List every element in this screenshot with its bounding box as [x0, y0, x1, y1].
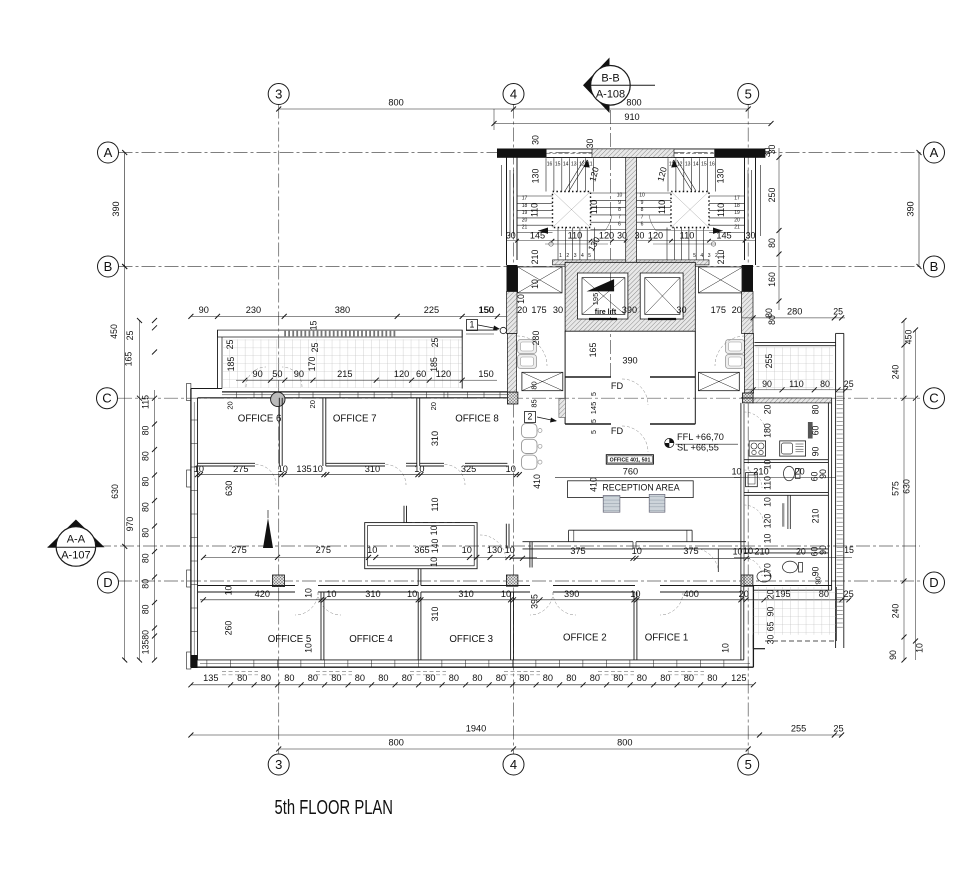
svg-text:5: 5: [591, 430, 598, 434]
svg-text:195: 195: [591, 293, 600, 306]
svg-text:30: 30: [617, 231, 627, 241]
svg-text:20: 20: [308, 400, 317, 408]
svg-text:20: 20: [763, 405, 773, 415]
svg-text:25: 25: [430, 338, 440, 348]
svg-text:10: 10: [429, 557, 439, 567]
svg-text:85: 85: [529, 399, 538, 407]
svg-text:130: 130: [487, 545, 502, 555]
svg-text:10: 10: [429, 525, 439, 535]
svg-text:80: 80: [707, 673, 717, 683]
svg-text:210: 210: [753, 466, 768, 476]
svg-text:20: 20: [766, 590, 776, 600]
svg-text:30: 30: [530, 135, 540, 145]
svg-text:90: 90: [811, 567, 821, 577]
svg-text:19: 19: [734, 210, 740, 216]
svg-text:80: 80: [140, 553, 150, 563]
svg-text:80: 80: [811, 405, 821, 415]
svg-text:800: 800: [389, 738, 404, 748]
svg-text:21: 21: [522, 225, 528, 231]
svg-text:10: 10: [516, 294, 526, 304]
svg-text:3: 3: [574, 253, 577, 259]
svg-text:130: 130: [716, 169, 726, 184]
svg-text:80: 80: [637, 673, 647, 683]
svg-text:20: 20: [517, 305, 527, 315]
svg-text:14: 14: [693, 162, 699, 168]
svg-text:970: 970: [125, 517, 135, 532]
svg-text:20: 20: [225, 401, 234, 409]
svg-text:7: 7: [618, 214, 621, 220]
svg-text:760: 760: [623, 467, 638, 477]
svg-text:170: 170: [307, 357, 317, 372]
svg-text:90: 90: [814, 576, 823, 584]
svg-text:10: 10: [617, 193, 623, 199]
svg-text:150: 150: [479, 305, 494, 315]
svg-text:630: 630: [110, 484, 120, 499]
svg-text:10: 10: [501, 589, 511, 599]
svg-text:80: 80: [140, 630, 150, 640]
svg-text:80: 80: [529, 381, 538, 389]
svg-text:310: 310: [458, 589, 473, 599]
svg-text:65: 65: [766, 622, 776, 632]
svg-text:260: 260: [224, 621, 234, 636]
svg-text:5: 5: [693, 253, 696, 259]
svg-text:19: 19: [522, 210, 528, 216]
svg-text:FFL +66,70: FFL +66,70: [677, 432, 724, 442]
svg-text:630: 630: [224, 481, 234, 496]
svg-text:16: 16: [709, 162, 715, 168]
svg-text:10: 10: [414, 464, 424, 474]
svg-text:21: 21: [734, 225, 740, 231]
svg-text:140: 140: [430, 538, 440, 553]
svg-text:450: 450: [904, 330, 914, 345]
svg-text:10: 10: [505, 545, 515, 555]
svg-text:1940: 1940: [466, 724, 486, 734]
svg-text:255: 255: [764, 354, 774, 369]
svg-text:B: B: [930, 259, 939, 274]
svg-text:110: 110: [680, 231, 695, 241]
svg-text:80: 80: [140, 579, 150, 589]
svg-text:800: 800: [626, 98, 641, 108]
svg-text:310: 310: [430, 607, 440, 622]
svg-text:12: 12: [677, 162, 683, 168]
svg-text:80: 80: [543, 673, 553, 683]
svg-text:120: 120: [599, 231, 614, 241]
svg-text:8: 8: [618, 207, 621, 213]
svg-text:80: 80: [496, 673, 506, 683]
svg-text:240: 240: [891, 365, 901, 380]
svg-text:2: 2: [528, 412, 533, 422]
svg-text:225: 225: [424, 305, 439, 315]
svg-text:10: 10: [407, 589, 417, 599]
svg-text:210: 210: [716, 250, 726, 265]
svg-text:10: 10: [763, 497, 773, 507]
svg-text:10: 10: [367, 545, 377, 555]
svg-text:10: 10: [313, 464, 323, 474]
svg-text:310: 310: [365, 589, 380, 599]
svg-text:30: 30: [553, 305, 563, 315]
svg-text:5th FLOOR PLAN: 5th FLOOR PLAN: [275, 797, 394, 819]
svg-text:20: 20: [739, 589, 749, 599]
svg-text:16: 16: [547, 162, 553, 168]
svg-text:110: 110: [763, 476, 773, 490]
svg-text:12: 12: [579, 162, 585, 168]
svg-text:FD: FD: [611, 426, 624, 436]
svg-text:110: 110: [430, 497, 440, 511]
svg-text:4: 4: [510, 87, 517, 102]
svg-text:80: 80: [767, 238, 777, 248]
svg-text:30: 30: [766, 635, 776, 645]
svg-text:RECEPTION AREA: RECEPTION AREA: [602, 482, 679, 492]
svg-text:80: 80: [684, 673, 694, 683]
svg-text:17: 17: [522, 196, 528, 202]
svg-text:OFFICE 3: OFFICE 3: [449, 634, 493, 645]
svg-text:OFFICE 401, 501: OFFICE 401, 501: [610, 458, 651, 464]
svg-text:11: 11: [669, 162, 674, 168]
svg-text:15: 15: [555, 162, 561, 168]
svg-text:80: 80: [402, 673, 412, 683]
svg-text:160: 160: [767, 272, 777, 287]
svg-text:410: 410: [532, 474, 542, 489]
svg-text:5: 5: [745, 757, 752, 772]
svg-text:80: 80: [449, 673, 459, 683]
svg-text:5: 5: [745, 87, 752, 102]
svg-text:25: 25: [310, 343, 320, 353]
svg-text:10: 10: [732, 466, 742, 476]
svg-text:17: 17: [734, 196, 740, 202]
svg-text:10: 10: [743, 546, 753, 556]
svg-text:80: 80: [140, 451, 150, 461]
svg-text:25: 25: [843, 589, 853, 599]
svg-text:10: 10: [733, 546, 743, 556]
svg-text:20: 20: [795, 466, 805, 476]
svg-text:18: 18: [734, 203, 740, 209]
svg-text:120: 120: [394, 369, 409, 379]
svg-text:150: 150: [478, 369, 493, 379]
svg-text:13: 13: [571, 162, 577, 168]
svg-text:10: 10: [326, 589, 336, 599]
svg-text:80: 80: [237, 673, 247, 683]
svg-text:C: C: [102, 391, 111, 406]
svg-text:80: 80: [820, 379, 830, 389]
svg-text:10: 10: [304, 588, 314, 598]
svg-text:365: 365: [414, 545, 429, 555]
svg-text:280: 280: [787, 307, 802, 317]
svg-text:20: 20: [796, 546, 806, 556]
svg-text:90: 90: [294, 369, 304, 379]
svg-text:90: 90: [811, 447, 821, 457]
svg-text:10: 10: [462, 545, 472, 555]
svg-text:5: 5: [591, 392, 598, 396]
svg-text:145: 145: [589, 402, 598, 415]
svg-text:20: 20: [429, 402, 438, 410]
svg-text:120: 120: [648, 231, 663, 241]
svg-text:90: 90: [199, 305, 209, 315]
svg-text:10: 10: [721, 643, 731, 653]
svg-text:90: 90: [252, 369, 262, 379]
svg-text:250: 250: [767, 188, 777, 203]
svg-text:325: 325: [461, 464, 476, 474]
svg-text:10: 10: [763, 534, 773, 544]
svg-text:175: 175: [531, 305, 546, 315]
svg-text:80: 80: [660, 673, 670, 683]
svg-text:10: 10: [506, 464, 516, 474]
svg-text:OFFICE 6: OFFICE 6: [238, 414, 282, 425]
svg-text:D: D: [929, 575, 938, 590]
svg-text:420: 420: [255, 589, 270, 599]
svg-text:30: 30: [746, 231, 756, 241]
svg-text:410: 410: [589, 477, 599, 492]
svg-text:15: 15: [701, 162, 707, 168]
svg-text:50: 50: [272, 369, 282, 379]
svg-text:80: 80: [590, 673, 600, 683]
svg-text:575: 575: [891, 481, 901, 496]
svg-text:9: 9: [618, 200, 621, 206]
svg-text:390: 390: [111, 201, 121, 216]
svg-text:60: 60: [416, 369, 426, 379]
svg-text:3: 3: [275, 757, 282, 772]
svg-text:B: B: [104, 259, 113, 274]
svg-text:80: 80: [140, 528, 150, 538]
svg-text:275: 275: [233, 464, 248, 474]
svg-text:4: 4: [510, 757, 517, 772]
svg-text:25: 25: [125, 331, 135, 341]
svg-text:165: 165: [588, 343, 598, 358]
svg-text:80: 80: [767, 315, 777, 325]
svg-text:800: 800: [388, 98, 403, 108]
svg-text:30: 30: [585, 139, 595, 149]
svg-text:800: 800: [617, 738, 632, 748]
svg-text:185: 185: [226, 357, 236, 372]
svg-text:A: A: [930, 145, 939, 160]
svg-text:135: 135: [296, 464, 311, 474]
svg-text:90: 90: [818, 545, 828, 555]
svg-text:280: 280: [531, 331, 541, 346]
svg-text:30: 30: [676, 305, 686, 315]
svg-text:80: 80: [472, 673, 482, 683]
svg-text:7: 7: [641, 214, 644, 220]
svg-text:A: A: [104, 145, 113, 160]
svg-text:6: 6: [641, 222, 644, 228]
svg-text:125: 125: [731, 673, 746, 683]
svg-text:110: 110: [589, 200, 599, 214]
svg-text:80: 80: [140, 426, 150, 436]
svg-text:A-A: A-A: [67, 534, 86, 546]
svg-text:380: 380: [335, 305, 350, 315]
svg-text:180: 180: [763, 423, 773, 438]
svg-text:4: 4: [581, 253, 584, 259]
svg-text:OFFICE 7: OFFICE 7: [333, 414, 377, 425]
svg-text:18: 18: [522, 203, 528, 209]
svg-text:20: 20: [732, 305, 742, 315]
svg-text:210: 210: [811, 509, 821, 524]
svg-text:165: 165: [124, 352, 134, 367]
svg-text:80: 80: [140, 477, 150, 487]
svg-text:10: 10: [632, 546, 642, 556]
svg-text:110: 110: [657, 200, 667, 214]
svg-text:80: 80: [284, 673, 294, 683]
svg-text:A-108: A-108: [596, 89, 625, 101]
svg-text:6: 6: [618, 222, 621, 228]
svg-text:4: 4: [700, 253, 703, 259]
svg-text:275: 275: [316, 545, 331, 555]
svg-text:30: 30: [767, 145, 777, 155]
svg-text:C: C: [929, 391, 938, 406]
svg-text:15: 15: [844, 545, 854, 555]
svg-text:15: 15: [309, 321, 319, 331]
svg-text:145: 145: [716, 231, 731, 241]
svg-text:80: 80: [425, 673, 435, 683]
svg-text:110: 110: [568, 231, 583, 241]
svg-text:25: 25: [833, 724, 843, 734]
svg-text:20: 20: [522, 217, 528, 223]
svg-text:115: 115: [140, 395, 150, 409]
svg-text:2: 2: [566, 253, 569, 259]
svg-text:375: 375: [570, 546, 585, 556]
svg-text:390: 390: [906, 201, 916, 216]
svg-text:80: 80: [378, 673, 388, 683]
svg-text:1: 1: [559, 253, 562, 259]
svg-text:255: 255: [791, 724, 806, 734]
svg-text:A-107: A-107: [61, 550, 90, 562]
svg-text:10: 10: [915, 643, 925, 653]
svg-text:90: 90: [888, 650, 898, 660]
svg-text:215: 215: [337, 369, 352, 379]
svg-text:D: D: [103, 575, 112, 590]
svg-text:B-B: B-B: [601, 73, 619, 85]
svg-text:5: 5: [588, 253, 591, 259]
svg-text:FD: FD: [611, 381, 624, 391]
svg-text:OFFICE 1: OFFICE 1: [645, 633, 689, 644]
svg-text:OFFICE 2: OFFICE 2: [563, 633, 607, 644]
svg-text:210: 210: [530, 250, 540, 265]
svg-text:310: 310: [365, 464, 380, 474]
svg-text:175: 175: [711, 305, 726, 315]
svg-text:10: 10: [304, 643, 314, 653]
svg-text:80: 80: [566, 673, 576, 683]
svg-text:13: 13: [685, 162, 691, 168]
svg-text:14: 14: [563, 162, 569, 168]
svg-text:10: 10: [194, 464, 204, 474]
svg-text:110: 110: [789, 379, 804, 389]
svg-text:30: 30: [506, 231, 516, 241]
svg-text:110: 110: [530, 203, 540, 217]
svg-text:375: 375: [683, 546, 698, 556]
svg-text:10: 10: [224, 586, 234, 596]
svg-text:3: 3: [275, 87, 282, 102]
svg-text:60: 60: [811, 426, 821, 436]
svg-text:80: 80: [308, 673, 318, 683]
svg-text:20: 20: [734, 217, 740, 223]
svg-text:80: 80: [519, 673, 529, 683]
svg-text:135: 135: [140, 640, 150, 655]
svg-text:fire lift: fire lift: [595, 309, 617, 316]
svg-text:90: 90: [762, 379, 772, 389]
svg-text:25: 25: [833, 307, 843, 317]
svg-text:OFFICE 4: OFFICE 4: [349, 634, 393, 645]
svg-text:910: 910: [624, 112, 639, 122]
svg-text:80: 80: [140, 502, 150, 512]
svg-text:8: 8: [641, 207, 644, 213]
svg-text:390: 390: [622, 305, 637, 315]
svg-text:390: 390: [622, 356, 637, 366]
svg-text:10: 10: [278, 464, 288, 474]
svg-text:80: 80: [331, 673, 341, 683]
svg-text:30: 30: [635, 231, 645, 241]
svg-text:3: 3: [708, 253, 711, 259]
svg-text:25: 25: [225, 340, 235, 350]
svg-text:1: 1: [470, 320, 475, 330]
svg-text:5: 5: [591, 419, 598, 423]
svg-text:90: 90: [766, 607, 776, 617]
svg-text:170: 170: [762, 563, 772, 578]
svg-text:9: 9: [641, 200, 644, 206]
svg-text:80: 80: [355, 673, 365, 683]
svg-text:135: 135: [203, 673, 218, 683]
svg-text:275: 275: [231, 545, 246, 555]
svg-text:310: 310: [430, 431, 440, 446]
svg-text:130: 130: [531, 169, 541, 184]
svg-text:230: 230: [246, 305, 261, 315]
svg-text:80: 80: [613, 673, 623, 683]
svg-text:210: 210: [754, 546, 769, 556]
svg-text:120: 120: [763, 514, 773, 529]
svg-text:10: 10: [639, 193, 645, 199]
svg-text:240: 240: [891, 604, 901, 619]
svg-text:25: 25: [844, 379, 854, 389]
svg-text:110: 110: [716, 203, 726, 217]
svg-text:185: 185: [429, 357, 439, 372]
svg-text:630: 630: [902, 479, 912, 494]
svg-text:145: 145: [530, 231, 545, 241]
svg-text:400: 400: [684, 589, 699, 599]
svg-text:450: 450: [109, 324, 119, 339]
svg-text:80: 80: [261, 673, 271, 683]
svg-text:390: 390: [564, 589, 579, 599]
svg-text:OFFICE 8: OFFICE 8: [455, 414, 499, 425]
svg-text:80: 80: [140, 604, 150, 614]
